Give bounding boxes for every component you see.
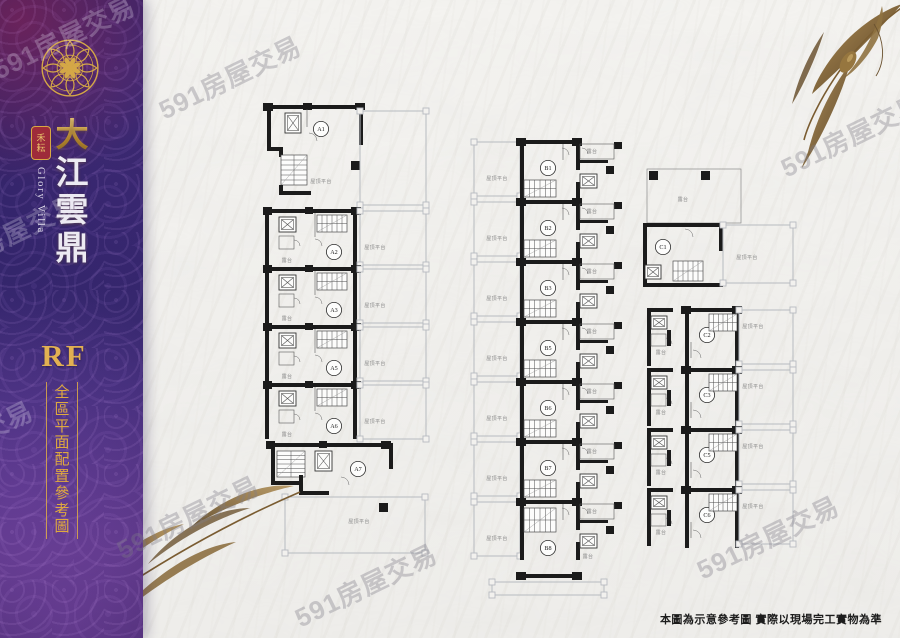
svg-text:A5: A5 <box>330 365 338 372</box>
svg-text:A1: A1 <box>317 126 325 133</box>
caption-char: 置 <box>52 469 72 486</box>
svg-text:C2: C2 <box>703 332 710 339</box>
svg-text:A3: A3 <box>330 307 338 314</box>
svg-text:A2: A2 <box>330 249 338 256</box>
area-label: 屋頂平台 <box>742 383 764 390</box>
area-label: 屋頂平台 <box>486 355 508 362</box>
unit-label-A5: A5 <box>326 360 341 375</box>
unit-label-A2: A2 <box>326 244 341 259</box>
svg-text:B3: B3 <box>544 285 551 292</box>
floorplan-poster: { "brand": { "seal": "禾耘", "title": "大江雲… <box>0 0 900 638</box>
area-label: 屋頂平台 <box>486 175 508 182</box>
area-label: 屋頂平台 <box>742 323 764 330</box>
unit-label-A7: A7 <box>350 461 365 476</box>
svg-text:B8: B8 <box>544 545 551 552</box>
svg-text:B7: B7 <box>544 465 551 472</box>
decor-branch-top-right <box>732 2 900 170</box>
area-label: 屋頂平台 <box>736 254 758 261</box>
seal-char: 耘 <box>36 143 45 153</box>
area-label: 屋頂平台 <box>486 235 508 242</box>
area-label: 屋頂平台 <box>742 443 764 450</box>
unit-label-A3: A3 <box>326 302 341 317</box>
title-char: 鼎 <box>50 231 94 269</box>
seal-char: 禾 <box>36 133 45 143</box>
area-label: 露台 <box>678 196 689 203</box>
unit-label-A6: A6 <box>326 418 341 433</box>
floorplan-building-a: A1屋頂平台露台A2屋頂平台露台A3屋頂平台露台A5屋頂平台露台A6屋頂平台A7… <box>263 103 433 558</box>
floorplan-building-b: 屋頂平台露台B1屋頂平台露台B2屋頂平台露台B3屋頂平台露台B5屋頂平台露台B6… <box>468 138 628 600</box>
floor-code: RF <box>0 338 128 374</box>
svg-text:B5: B5 <box>544 345 551 352</box>
caption-char: 區 <box>52 402 72 419</box>
area-label: 露台 <box>282 373 293 380</box>
area-label: 露台 <box>282 431 293 438</box>
caption-char: 配 <box>52 452 72 469</box>
unit-label-B5: B5 <box>540 340 555 355</box>
plan-caption: 全區平面配置參考圖 <box>46 382 78 539</box>
brand-seal: 禾耘 <box>31 126 51 160</box>
floorplan-building-c: 露台C1屋頂平台露台C2屋頂平台露台C3屋頂平台露台C5屋頂平台露台C6屋頂平台 <box>633 163 798 548</box>
area-label: 露台 <box>656 529 667 536</box>
area-label: 露台 <box>282 257 293 264</box>
caption-char: 全 <box>52 385 72 402</box>
svg-text:B2: B2 <box>544 225 551 232</box>
project-title: 大江雲鼎 <box>50 118 94 268</box>
disclaimer-text: 本圖為示意參考圖 實際以現場完工實物為準 <box>660 611 882 627</box>
project-subtitle-en: Glory Villa <box>35 167 46 234</box>
title-char: 大 <box>50 118 94 156</box>
svg-text:C6: C6 <box>703 512 710 519</box>
unit-label-A1: A1 <box>313 121 328 136</box>
area-label: 屋頂平台 <box>348 518 370 525</box>
area-label: 露台 <box>656 349 667 356</box>
caption-char: 面 <box>52 435 72 452</box>
brand-medallion-icon <box>40 38 100 98</box>
unit-label-B2: B2 <box>540 220 555 235</box>
svg-text:C5: C5 <box>703 452 710 459</box>
area-label: 屋頂平台 <box>742 503 764 510</box>
area-label: 屋頂平台 <box>486 475 508 482</box>
area-label: 屋頂平台 <box>364 418 386 425</box>
title-char: 雲 <box>50 193 94 231</box>
svg-text:C3: C3 <box>703 392 710 399</box>
area-label: 屋頂平台 <box>310 178 332 185</box>
area-label: 屋頂平台 <box>364 244 386 251</box>
title-char: 江 <box>50 156 94 194</box>
unit-label-B8: B8 <box>540 540 555 555</box>
svg-text:B1: B1 <box>544 165 551 172</box>
svg-text:B6: B6 <box>544 405 551 412</box>
area-label: 屋頂平台 <box>486 295 508 302</box>
unit-label-C1: C1 <box>655 239 670 254</box>
area-label: 屋頂平台 <box>486 535 508 542</box>
area-label: 屋頂平台 <box>364 302 386 309</box>
area-label: 露台 <box>583 553 594 560</box>
unit-label-B3: B3 <box>540 280 555 295</box>
unit-label-B1: B1 <box>540 160 555 175</box>
unit-label-B6: B6 <box>540 400 555 415</box>
svg-text:A7: A7 <box>354 466 362 473</box>
caption-char: 圖 <box>52 519 72 536</box>
svg-text:A6: A6 <box>330 423 338 430</box>
area-label: 露台 <box>282 315 293 322</box>
area-label: 露台 <box>656 469 667 476</box>
unit-label-B7: B7 <box>540 460 555 475</box>
caption-char: 平 <box>52 419 72 436</box>
brand-sidebar: 禾耘 大江雲鼎 Glory Villa RF 全區平面配置參考圖 <box>0 0 143 638</box>
caption-char: 參 <box>52 486 72 503</box>
area-label: 露台 <box>656 409 667 416</box>
caption-char: 考 <box>52 503 72 520</box>
area-label: 屋頂平台 <box>486 415 508 422</box>
area-label: 屋頂平台 <box>364 360 386 367</box>
svg-text:C1: C1 <box>659 244 666 251</box>
